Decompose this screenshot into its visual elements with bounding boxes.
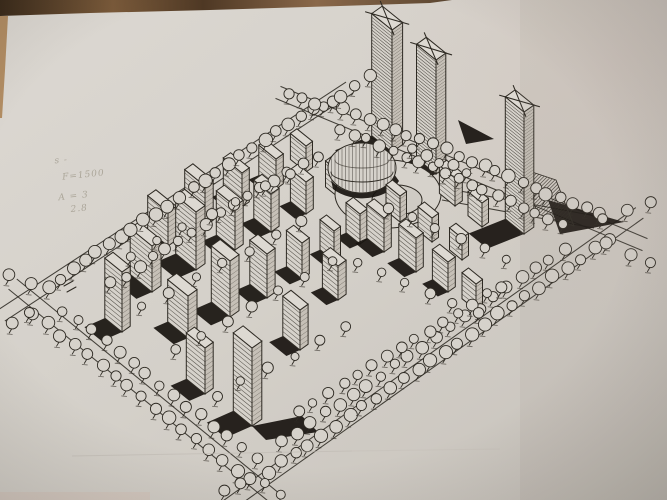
photo-of-architectural-sketch: s -F=1500A = 32.8	[0, 0, 667, 500]
urban-masterplan-sketch: s -F=1500A = 32.8	[0, 0, 667, 500]
vignette	[0, 0, 667, 500]
